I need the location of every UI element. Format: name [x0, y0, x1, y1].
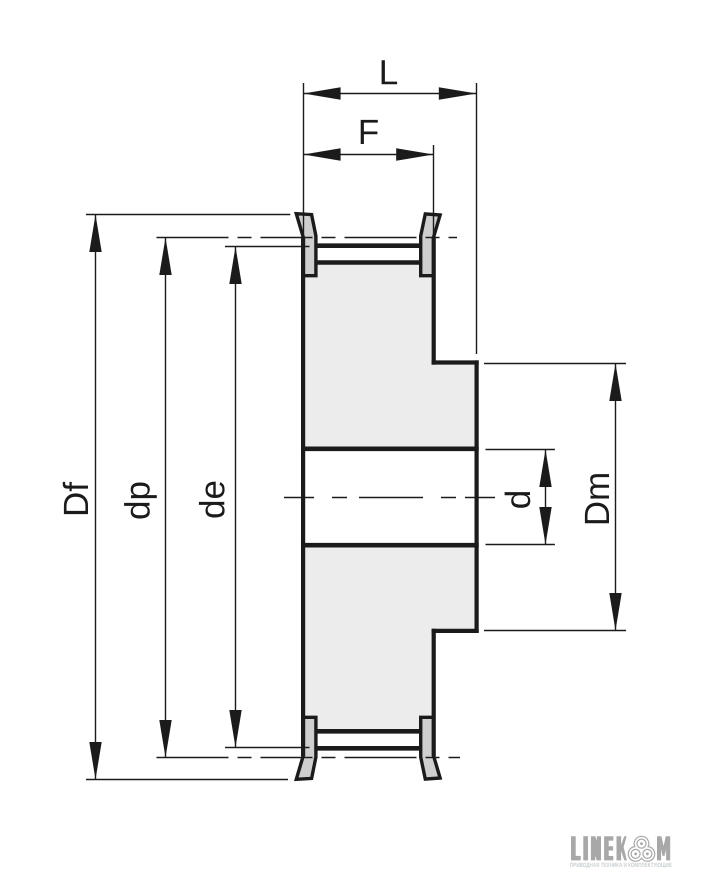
svg-text:ПРИВОДНАЯ ТЕХНИКА И КОМПЛЕКТУЮ: ПРИВОДНАЯ ТЕХНИКА И КОМПЛЕКТУЮЩИЕ — [570, 862, 672, 869]
